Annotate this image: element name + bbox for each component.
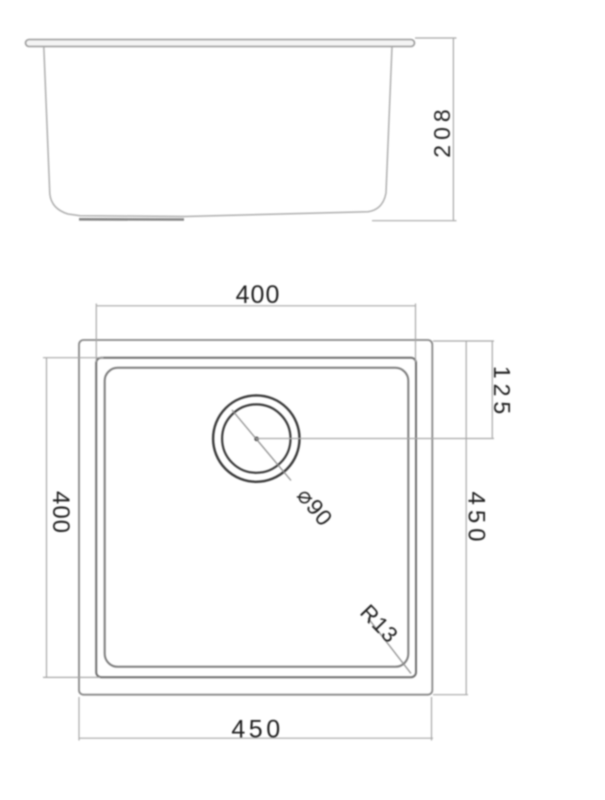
svg-text:400: 400 bbox=[236, 281, 281, 309]
svg-text:⌀90: ⌀90 bbox=[292, 483, 338, 531]
svg-text:400: 400 bbox=[47, 491, 74, 534]
svg-text:R13: R13 bbox=[355, 600, 403, 649]
svg-text:450: 450 bbox=[463, 491, 490, 546]
svg-text:208: 208 bbox=[429, 104, 455, 157]
svg-text:125: 125 bbox=[489, 366, 515, 419]
svg-text:450: 450 bbox=[231, 716, 283, 744]
